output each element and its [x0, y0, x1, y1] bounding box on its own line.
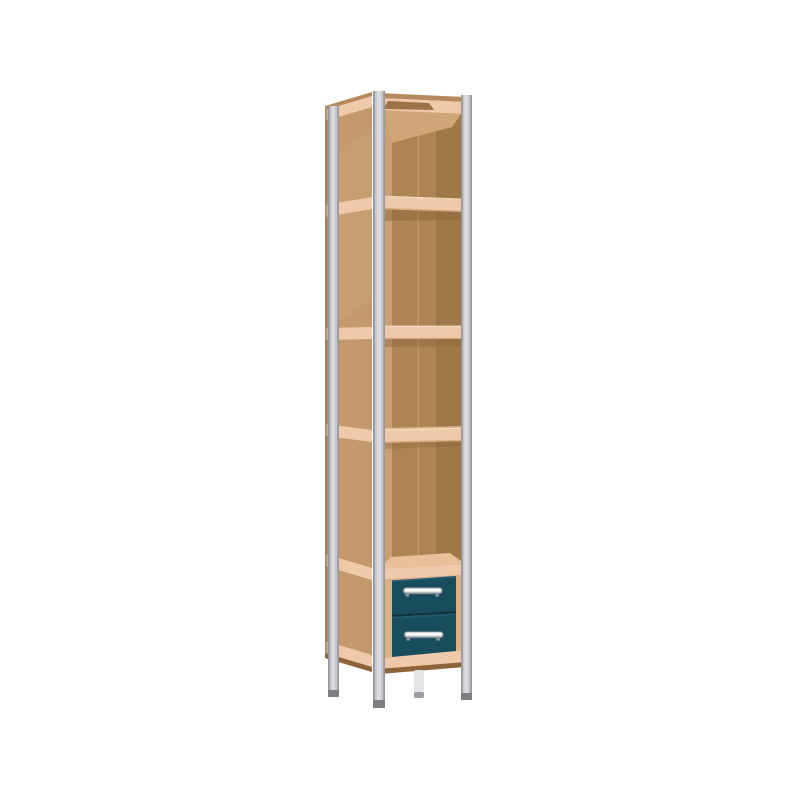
shadow-under-shelf-2	[385, 339, 461, 347]
post-back-left-edge-r	[337, 106, 339, 697]
side-panel-back-edge	[325, 109, 328, 659]
shelf-edge-2	[379, 327, 465, 339]
drawer-frame-right	[456, 576, 461, 651]
drawer-frame-left	[385, 581, 392, 659]
product-render-canvas	[0, 0, 800, 800]
post-front-left-foot	[373, 700, 385, 708]
shelf-2-highlight	[379, 326, 465, 327]
post-front-right	[461, 95, 472, 700]
drawer-unit-group	[385, 576, 461, 658]
post-back-left	[328, 106, 339, 697]
post-front-right-edge-r	[470, 95, 472, 700]
handle-bottom-bar-highlight	[406, 633, 442, 636]
handle-top-bar-highlight	[405, 589, 441, 592]
leg-back-right	[414, 670, 424, 698]
shelving-unit-illustration	[0, 0, 800, 800]
post-front-left-highlight	[377, 91, 381, 708]
post-front-right-foot	[461, 693, 472, 700]
post-back-left-highlight	[332, 106, 336, 697]
leg-back-right-foot	[414, 692, 424, 698]
post-front-left-edge-l	[373, 91, 375, 708]
post-back-left-edge-l	[328, 106, 330, 697]
drawer-front-top	[392, 576, 456, 615]
shelf-edge-2-shade	[379, 338, 465, 339]
post-back-left-foot	[328, 690, 339, 697]
post-front-right-edge-l	[461, 95, 463, 700]
post-front-right-highlight	[464, 95, 468, 700]
post-front-left-edge-r	[383, 91, 385, 708]
post-front-left	[373, 91, 385, 708]
